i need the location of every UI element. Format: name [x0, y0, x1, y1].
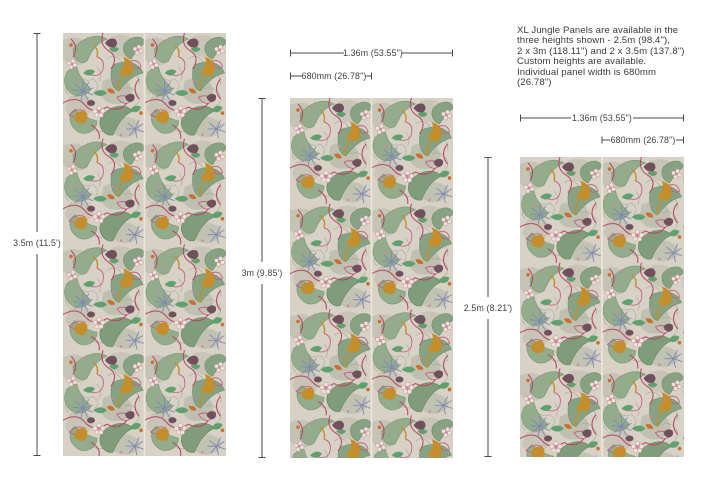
height-label-3-5m: 3.5m (11.5') — [13, 238, 61, 248]
height-label-2-5m: 2.5m (8.21') — [464, 303, 512, 313]
single-width-label-right: 680mm (26.78") — [611, 135, 676, 145]
overall-width-label-middle: 1.36m (53.55") — [343, 48, 403, 58]
overall-width-label-right: 1.36m (53.55") — [572, 113, 632, 123]
availability-info-text: XL Jungle Panels are available in the th… — [517, 26, 720, 88]
single-width-label-middle: 680mm (26.78") — [302, 71, 367, 81]
height-dimension-3m — [259, 99, 266, 458]
wallpaper-size-diagram: XL Jungle Panels are available in the th… — [0, 0, 720, 489]
height-label-3m: 3m (9.85') — [242, 268, 283, 278]
